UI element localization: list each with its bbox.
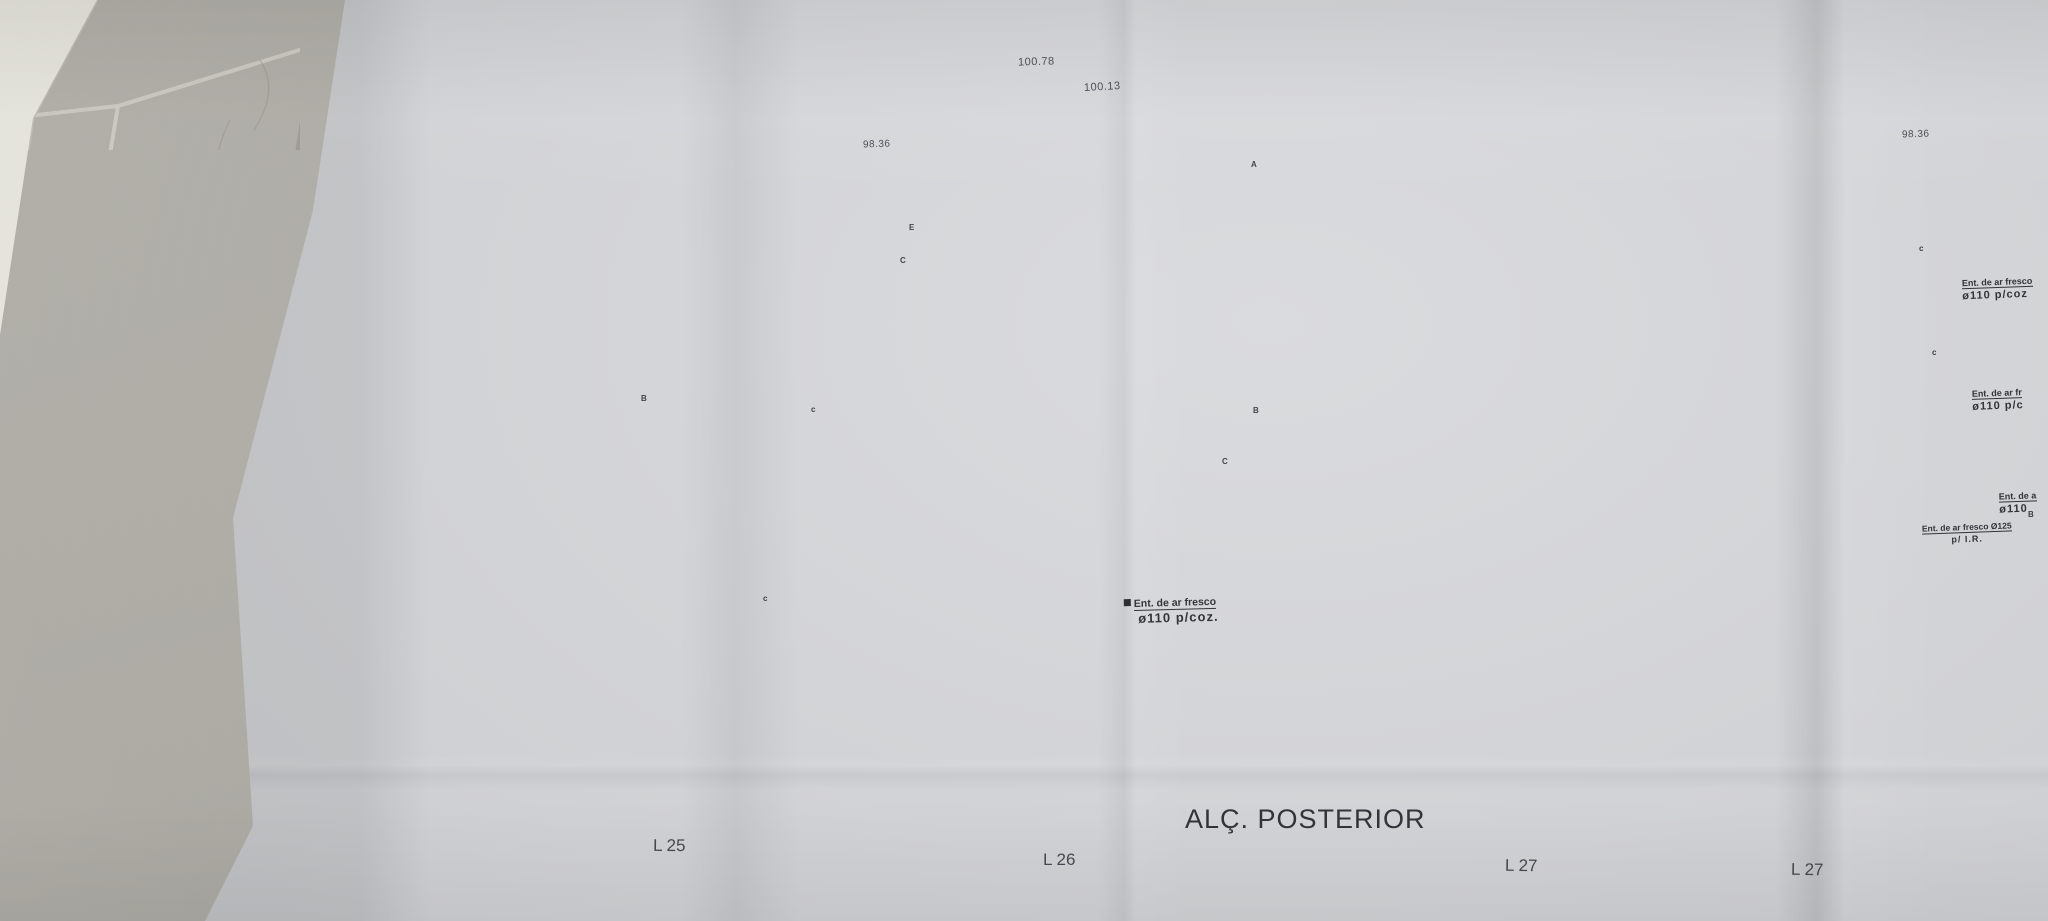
dimension-label-roof-right: 98.36 [1902, 129, 1930, 141]
lot-label-l27-a: L 27 [1505, 856, 1538, 877]
annotation-fresh-air-right-top: Ent. de ar fresco ø110 p/coz [1962, 272, 2033, 303]
reference-letter: B [1253, 406, 1259, 415]
annotation-fresh-air-right-ground: Ent. de ar fresco Ø125 p/ I.R. [1922, 516, 2013, 545]
reference-letter: c [1919, 244, 1923, 253]
annotation-line1: Ent. de a [1999, 491, 2037, 503]
reference-letter: B [2028, 510, 2034, 519]
reference-letter: c [763, 594, 767, 603]
lot-label-l26: L 26 [1043, 850, 1075, 870]
annotation-line1: Ent. de ar fresco Ø125 [1922, 521, 2012, 534]
annotation-fresh-air-right-middle: Ent. de ar fr ø110 p/c [1972, 383, 2024, 413]
annotation-fresh-air-center: Ent. de ar fresco ø110 p/coz. [1124, 593, 1219, 626]
lot-label-l25: L 25 [653, 836, 686, 856]
dimension-label-roof-left: 98.36 [863, 139, 891, 151]
reference-letter: C [1222, 457, 1228, 466]
annotation-line2: ø110 p/coz. [1138, 610, 1219, 626]
reference-letter: C [900, 256, 906, 265]
dimension-label-rooftop-left: 100.78 [1018, 55, 1055, 68]
reference-letter: E [909, 223, 914, 232]
vent-marker-square [1124, 599, 1131, 606]
lot-label-l27-b: L 27 [1791, 860, 1824, 881]
photo-of-architectural-drawing: 100.78 100.13 98.36 98.36 Ent. de ar fre… [0, 0, 2048, 921]
dimension-label-rooftop-right: 100.13 [1084, 80, 1121, 94]
reference-letter: B [641, 394, 647, 403]
reference-letter: c [811, 405, 815, 414]
reference-letter: A [1251, 160, 1257, 169]
annotation-line2: ø110 p/c [1972, 400, 2024, 413]
annotation-line2: ø110 p/coz [1962, 289, 2033, 303]
drawing-title: ALÇ. POSTERIOR [1185, 804, 1426, 835]
reference-letter: c [1932, 348, 1936, 357]
